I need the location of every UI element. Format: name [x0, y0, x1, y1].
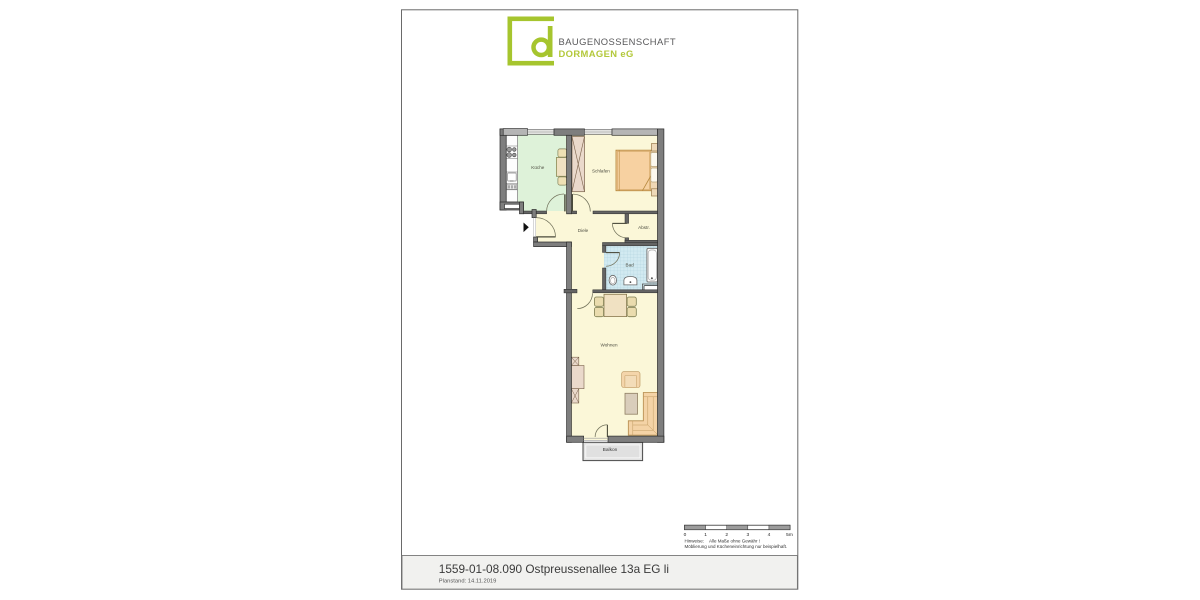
svg-text:Wohnen: Wohnen — [600, 342, 617, 347]
svg-text:Diele: Diele — [578, 228, 589, 233]
svg-text:Küche: Küche — [531, 165, 544, 170]
svg-text:Balkon: Balkon — [603, 447, 618, 453]
svg-text:3: 3 — [746, 532, 749, 538]
svg-text:Hinweise: Alle Maße ohne Ge: Hinweise: Alle Maße ohne Gewähr ! — [685, 539, 761, 544]
svg-text:1559-01-08.090 Ostpreussenalle: 1559-01-08.090 Ostpreussenallee 13a EG l… — [439, 562, 669, 576]
svg-text:Planstand: 14.11.2019: Planstand: 14.11.2019 — [439, 579, 497, 585]
svg-text:1: 1 — [704, 532, 707, 538]
svg-text:Schlafen: Schlafen — [592, 169, 610, 174]
svg-text:0: 0 — [684, 532, 687, 538]
svg-text:2: 2 — [725, 532, 728, 538]
svg-text:Bad: Bad — [626, 263, 635, 268]
svg-text:4: 4 — [768, 532, 771, 538]
svg-text:DORMAGEN eG: DORMAGEN eG — [559, 48, 634, 59]
svg-text:BAUGENOSSENSCHAFT: BAUGENOSSENSCHAFT — [559, 36, 677, 47]
svg-text:Möblierung und Kücheneinrichtu: Möblierung und Kücheneinrichtung nur bei… — [685, 544, 788, 549]
svg-text:5m: 5m — [786, 532, 793, 538]
svg-text:Abstr.: Abstr. — [638, 225, 650, 230]
